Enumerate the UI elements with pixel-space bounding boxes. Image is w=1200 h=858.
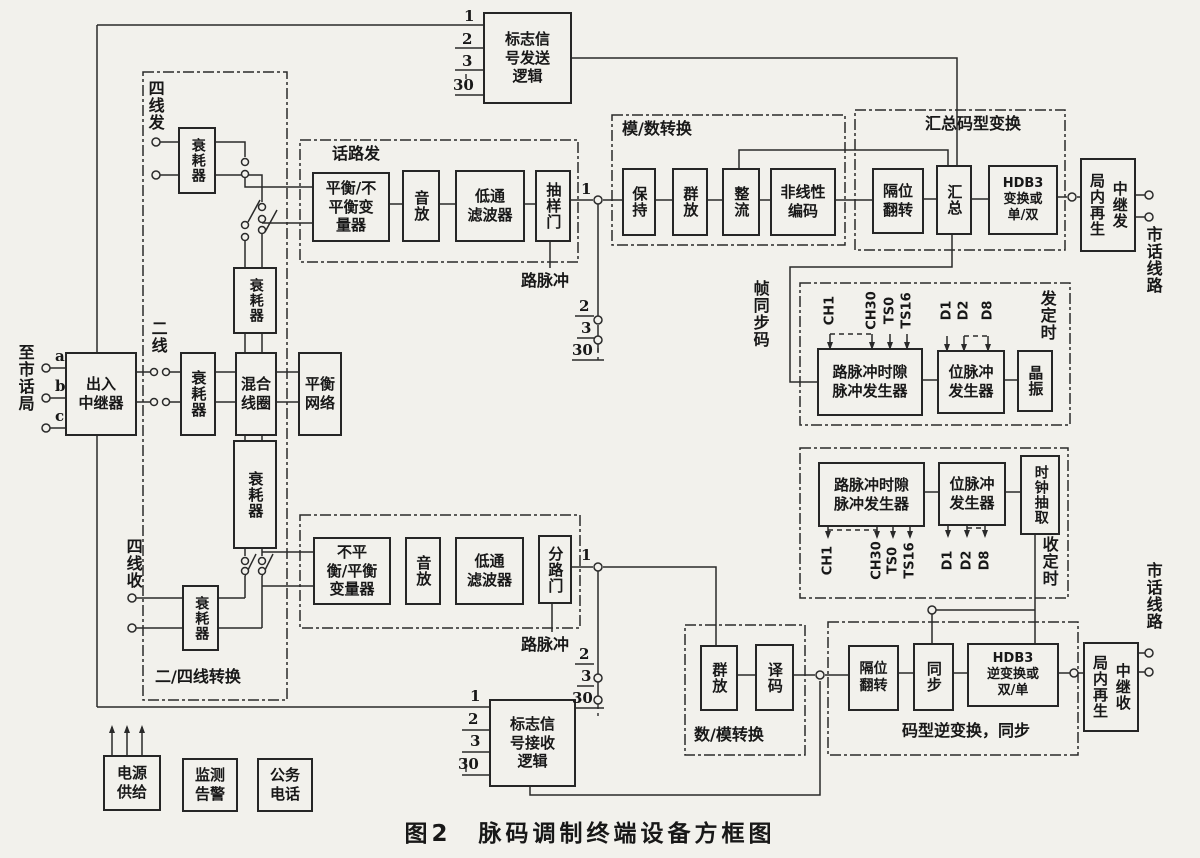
pin-recv-30: 30 (458, 756, 479, 773)
box-hdb3-convert-rx: HDB3 逆变换或 双/单 (967, 643, 1059, 707)
section-label-ad-conversion: 模/数转换 (622, 120, 692, 138)
section-label-voice-tx: 话路发 (332, 145, 380, 163)
label-city-line-bottom: 市话线路 (1144, 562, 1162, 630)
pin-send-30: 30 (453, 77, 474, 94)
label-channel-pulse-rx: 路脉冲 (521, 636, 569, 654)
label-ch1-rx: CH1 (821, 539, 836, 583)
section-label-da-conversion: 数/模转换 (694, 726, 764, 744)
label-channel-pulse-tx: 路脉冲 (521, 272, 569, 290)
box-bit-flip-rx: 隔位 翻转 (848, 645, 899, 711)
section-label-tx-timing: 发定时 (1038, 290, 1056, 341)
terminal-b: b (55, 378, 66, 395)
label-frame-sync-code: 帧同步码 (751, 280, 769, 348)
box-power-supply: 电源 供给 (103, 755, 161, 811)
box-channel-timeslot-pulse-gen-rx: 路脉冲时隙 脉冲发生器 (818, 462, 925, 527)
pin-recv-1: 1 (470, 688, 480, 705)
box-balance-network: 平衡 网络 (298, 352, 342, 436)
box-audio-amp-tx: 音放 (402, 170, 440, 242)
label-four-wire-rx: 四线收 (124, 538, 142, 589)
box-sync: 同步 (913, 643, 954, 711)
box-balanced-unbalanced-transformer: 平衡/不 平衡变 量器 (312, 172, 390, 242)
node-tx-3: 3 (581, 320, 591, 337)
node-rx-30: 30 (572, 690, 593, 707)
node-tx-2: 2 (579, 298, 589, 315)
box-nonlinear-coding: 非线性 编码 (770, 168, 836, 236)
label-four-wire-tx: 四线发 (146, 80, 164, 131)
label-two-wire: 二线 (149, 320, 167, 354)
box-rectifier: 整流 (722, 168, 760, 236)
box-crystal-oscillator: 晶振 (1017, 350, 1053, 412)
box-lowpass-filter-rx: 低通 滤波器 (455, 537, 524, 605)
terminal-a: a (55, 348, 65, 365)
section-label-rx-timing: 收定时 (1040, 536, 1058, 587)
label-d8-rx: D8 (978, 543, 993, 579)
section-label-sum-code-conversion: 汇总码型变换 (925, 115, 1021, 133)
label-ch1-tx: CH1 (823, 289, 838, 333)
pin-send-1: 1 (464, 8, 474, 25)
node-tx-1: 1 (581, 181, 591, 198)
box-unbalanced-balanced-transformer: 不平 衡/平衡 变量器 (313, 537, 391, 605)
label-d2-tx: D2 (957, 293, 972, 329)
node-rx-3: 3 (581, 668, 591, 685)
box-branch-gate: 分路门 (538, 535, 572, 604)
label-ts16-rx: TS16 (903, 537, 918, 585)
label-d8-tx: D8 (981, 293, 996, 329)
label-city-line-top: 市话线路 (1144, 226, 1162, 294)
box-attenuator-hybrid-top: 衰耗器 (233, 267, 277, 334)
pin-recv-2: 2 (468, 711, 478, 728)
terminal-c: c (55, 408, 64, 425)
label-ch30-tx: CH30 (865, 287, 880, 335)
box-group-amp-tx: 群放 (672, 168, 708, 236)
box-channel-timeslot-pulse-gen-tx: 路脉冲时隙 脉冲发生器 (817, 348, 923, 416)
box-sampling-gate: 抽样门 (535, 170, 571, 242)
pin-send-2: 2 (462, 31, 472, 48)
box-flag-signal-send-logic: 标志信 号发送 逻辑 (483, 12, 572, 104)
box-monitor-alarm: 监测 告警 (182, 758, 238, 812)
box-hybrid-coil: 混合 线圈 (235, 352, 277, 436)
relay-tx-label: 中继发 (1110, 181, 1129, 229)
label-ts16-tx: TS16 (900, 287, 915, 335)
box-regen-relay-rx: 局内再生 中继收 (1083, 642, 1139, 732)
box-attenuator-2wire: 衰耗器 (180, 352, 216, 436)
label-ts0-tx: TS0 (883, 291, 898, 331)
box-attenuator-hybrid-bottom: 衰耗器 (233, 440, 277, 549)
box-audio-amp-rx: 音放 (405, 537, 441, 605)
section-label-2-4-wire-conversion: 二/四线转换 (155, 668, 241, 686)
box-lowpass-filter-tx: 低通 滤波器 (455, 170, 525, 242)
box-bit-flip-tx: 隔位 翻转 (872, 168, 924, 234)
figure-caption: 图2 脉码调制终端设备方框图 (380, 814, 800, 848)
section-label-code-inverse-sync: 码型逆变换，同步 (902, 722, 1030, 740)
relay-rx-label: 中继收 (1113, 663, 1132, 711)
box-summing: 汇总 (936, 165, 972, 235)
label-to-city-office: 至市话局 (16, 344, 34, 412)
box-attenuator-4wire-rx: 衰耗器 (182, 585, 219, 651)
regen-label: 局内再生 (1090, 655, 1109, 719)
box-service-phone: 公务 电话 (257, 758, 313, 812)
box-group-amp-rx: 群放 (700, 645, 738, 711)
box-flag-signal-receive-logic: 标志信 号接收 逻辑 (489, 699, 576, 787)
label-d2-rx: D2 (960, 543, 975, 579)
box-attenuator-4wire-tx: 衰耗器 (178, 127, 216, 194)
label-d1-rx: D1 (941, 543, 956, 579)
box-bit-pulse-gen-tx: 位脉冲 发生器 (937, 350, 1005, 414)
box-inout-repeater: 出入 中继器 (65, 352, 137, 436)
box-bit-pulse-gen-rx: 位脉冲 发生器 (938, 462, 1006, 526)
box-clock-extraction: 时钟抽取 (1020, 455, 1060, 535)
box-hdb3-convert-tx: HDB3 变换或 单/双 (988, 165, 1058, 235)
label-ch30-rx: CH30 (870, 537, 885, 585)
pin-send-3: 3 (462, 53, 472, 70)
regen-label: 局内再生 (1087, 173, 1106, 237)
box-regen-relay-tx: 局内再生 中继发 (1080, 158, 1136, 252)
label-d1-tx: D1 (940, 293, 955, 329)
box-hold: 保持 (622, 168, 656, 236)
pin-recv-3: 3 (470, 733, 480, 750)
label-ts0-rx: TS0 (886, 541, 901, 581)
box-decoder: 译码 (755, 644, 794, 711)
pcm-terminal-block-diagram: 标志信 号发送 逻辑 出入 中继器 衰耗器 衰耗器 衰耗器 混合 线圈 平衡 网… (0, 0, 1200, 858)
node-rx-1: 1 (581, 547, 591, 564)
node-rx-2: 2 (579, 646, 589, 663)
node-tx-30: 30 (572, 342, 593, 359)
